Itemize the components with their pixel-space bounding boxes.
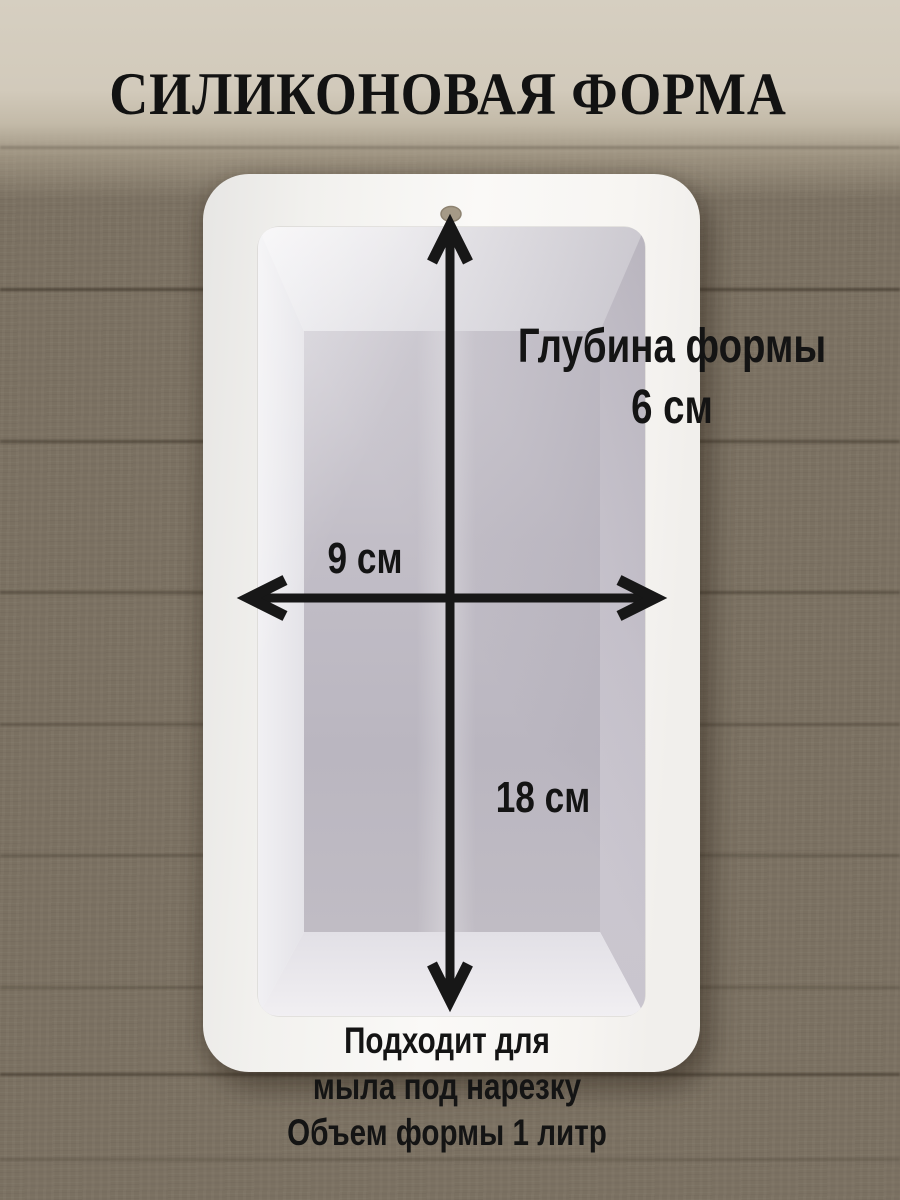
footer-note-line2: мыла под нарезку [287,1064,607,1110]
depth-label-line1: Глубина формы [518,316,826,377]
height-label-text: 18 см [496,773,591,823]
width-label: 9 см [318,534,412,584]
depth-label-line2: 6 см [518,377,826,438]
footer-note: Подходит для мыла под нарезку Объем форм… [247,1018,647,1156]
depth-label: Глубина формы 6 см [479,316,864,438]
page-title-text: СИЛИКОНОВАЯ ФОРМА [109,60,786,129]
footer-note-line1: Подходит для [287,1018,607,1064]
width-label-text: 9 см [328,534,403,584]
footer-note-line3: Объем формы 1 литр [287,1110,607,1156]
height-label: 18 см [484,773,602,823]
product-photo: { "title": "СИЛИКОНОВАЯ ФОРМА", "labels"… [0,0,900,1200]
page-title: СИЛИКОНОВАЯ ФОРМА [72,60,825,129]
